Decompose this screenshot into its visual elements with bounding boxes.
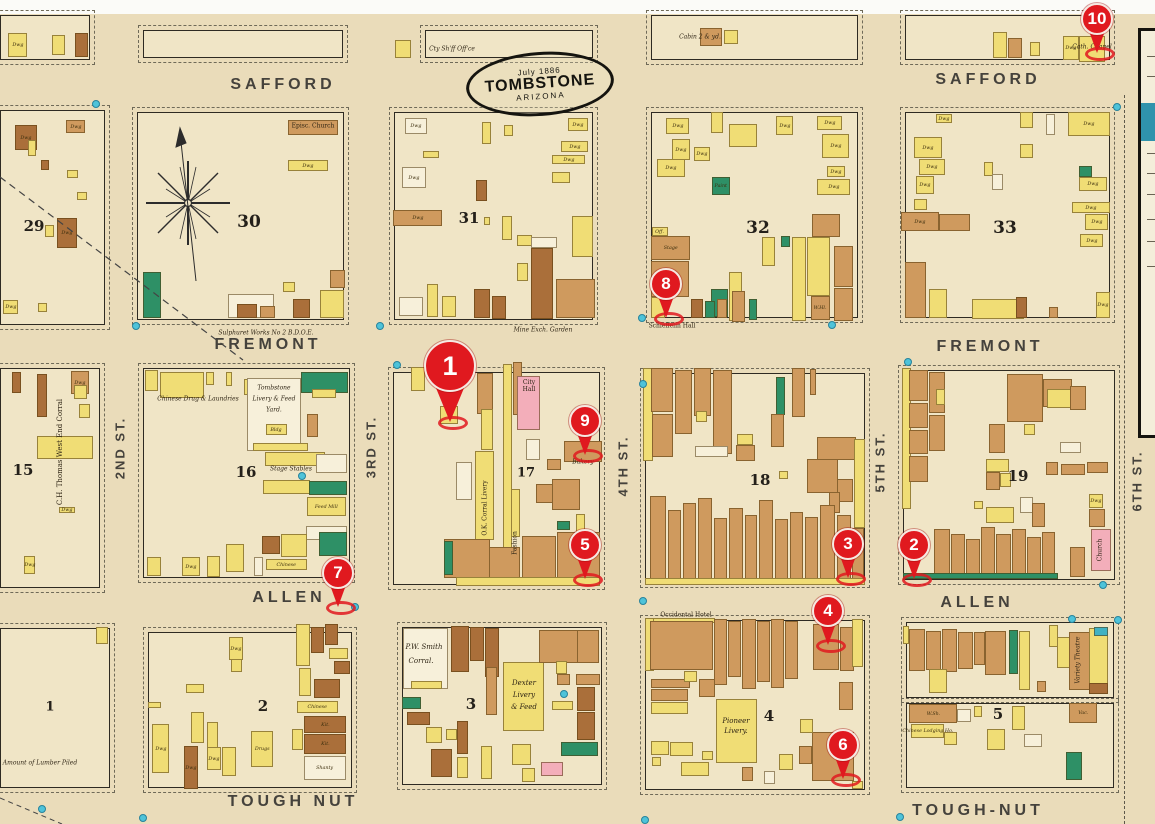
building: Bldg (266, 424, 287, 435)
block-number-17: 17 (517, 466, 535, 481)
building: Dwg (822, 134, 849, 158)
street-label-allen: ALLEN (252, 589, 325, 607)
water-hydrant-dot (38, 805, 46, 813)
building (985, 631, 1006, 675)
building: Dwg (817, 116, 842, 130)
building (531, 248, 553, 319)
water-hydrant-dot (560, 690, 568, 698)
photo-edge (0, 0, 1155, 14)
marker-number: 4 (823, 601, 832, 621)
building (1016, 297, 1027, 318)
water-hydrant-dot (92, 100, 100, 108)
building (668, 510, 681, 580)
marker-number: 7 (333, 563, 342, 583)
building: Dwg (561, 141, 588, 152)
block-number-5: 5 (993, 705, 1003, 723)
building (696, 411, 707, 422)
building (1037, 681, 1046, 692)
building (951, 534, 965, 578)
building: Dwg (672, 139, 690, 160)
building (974, 706, 982, 717)
building: Dwg (919, 159, 945, 175)
building-label: Dwg (828, 185, 839, 190)
map-marker-5[interactable]: 5 (569, 529, 601, 585)
building-label: Dwg (61, 231, 72, 236)
building (311, 627, 324, 653)
building (561, 742, 598, 756)
adjacent-sheet-legend-strip (1138, 28, 1155, 438)
building (834, 246, 853, 287)
building (330, 270, 345, 288)
street-label-3rd-st-: 3RD ST. (364, 416, 379, 478)
building (936, 389, 945, 405)
building (1008, 38, 1022, 58)
water-hydrant-dot (638, 314, 646, 322)
building (541, 762, 563, 776)
building (226, 544, 244, 572)
building: Kit. (304, 734, 346, 754)
building (511, 489, 520, 537)
building-label: Dwg (696, 152, 707, 157)
building (470, 627, 484, 661)
building-label: Dwg (914, 219, 925, 224)
marker-number: 6 (838, 735, 847, 755)
building (475, 451, 494, 540)
building (790, 512, 803, 580)
building (652, 414, 673, 457)
building: Dwg (552, 155, 585, 164)
building (1089, 628, 1108, 686)
building (909, 403, 928, 428)
building (695, 446, 728, 457)
building (1046, 114, 1055, 135)
building: Paint (712, 177, 730, 195)
building (996, 534, 1011, 578)
building (482, 122, 491, 144)
water-hydrant-dot (1099, 581, 1107, 589)
building (293, 299, 310, 318)
building (309, 481, 347, 495)
building (1070, 386, 1086, 410)
marker-pin-tail (436, 388, 464, 422)
marker-circle: 4 (812, 595, 844, 627)
building-label: Dwg (24, 563, 35, 568)
building (807, 237, 830, 296)
building (1019, 631, 1030, 690)
building (986, 472, 1000, 490)
building (552, 701, 573, 710)
building (929, 415, 945, 451)
building (314, 679, 340, 698)
building (307, 414, 318, 437)
water-hydrant-dot (139, 814, 147, 822)
building (325, 624, 338, 645)
building: Dwg (817, 179, 850, 195)
building (729, 124, 757, 147)
building-label: Dwg (830, 169, 841, 174)
building-label: Paint (715, 184, 727, 189)
building (427, 284, 438, 317)
building (650, 496, 666, 580)
building (79, 404, 90, 418)
building (817, 437, 856, 460)
building (442, 296, 456, 317)
building (512, 744, 531, 765)
block-number-15: 15 (13, 461, 34, 479)
building-label: Stage (664, 246, 678, 251)
building-label: Dwg (412, 216, 423, 221)
building (451, 626, 469, 672)
water-hydrant-dot (132, 322, 140, 330)
building (1030, 42, 1040, 56)
building: W.Sh. (909, 704, 957, 723)
map-block (651, 15, 858, 60)
building (191, 712, 204, 743)
building (1020, 112, 1033, 128)
building (517, 376, 540, 430)
building-label: Dwg (302, 163, 313, 168)
building (431, 749, 452, 777)
building (37, 374, 47, 417)
marker-number: 5 (580, 535, 589, 555)
building (517, 235, 532, 246)
building (779, 754, 793, 770)
building (1009, 630, 1018, 674)
block-number-18: 18 (750, 471, 771, 489)
building (476, 180, 487, 201)
map-marker-2[interactable]: 2 (898, 529, 930, 585)
building (807, 459, 838, 493)
marker-circle: 8 (650, 268, 682, 300)
building-label: Dwg (919, 183, 930, 188)
building: Dwg (288, 160, 328, 171)
map-marker-9[interactable]: 9 (569, 405, 601, 461)
building-label: Vac. (1078, 711, 1088, 716)
building (779, 471, 788, 479)
building-label: Off. (656, 229, 665, 234)
water-hydrant-dot (828, 321, 836, 329)
building (1060, 442, 1081, 453)
building (517, 263, 528, 281)
building: Dwg (1085, 214, 1108, 230)
building (147, 557, 161, 576)
building (1024, 734, 1042, 747)
street-label-2nd-st-: 2ND ST. (113, 417, 128, 479)
building (1070, 547, 1085, 577)
building (283, 282, 295, 292)
building (334, 661, 350, 674)
building-label: Chinese (277, 562, 297, 567)
building (186, 684, 204, 693)
building-label: Dwg (926, 165, 937, 170)
building (160, 372, 204, 398)
building-label: Dwg (208, 756, 219, 761)
building-label: Feed Mill (315, 504, 338, 509)
building (207, 556, 220, 577)
building (423, 151, 439, 158)
building (522, 768, 535, 782)
building: Shanty (304, 756, 346, 780)
building (1046, 462, 1058, 475)
building: Dwg (402, 167, 426, 188)
building: Dwg (57, 218, 77, 248)
building-label: Dwg (1091, 220, 1102, 225)
building (557, 674, 570, 685)
building (805, 517, 818, 580)
building (700, 28, 722, 46)
building (992, 174, 1003, 190)
water-hydrant-dot (298, 472, 306, 480)
building (986, 459, 1009, 472)
building (909, 370, 928, 401)
building (728, 621, 741, 677)
building (37, 436, 93, 459)
building (457, 721, 468, 754)
building: Vac. (1069, 703, 1097, 723)
building (757, 621, 770, 682)
building (1079, 166, 1092, 177)
map-marker-7[interactable]: 7 (322, 557, 354, 613)
building-label: Dwg (1086, 238, 1097, 243)
marker-circle: 3 (832, 528, 864, 560)
building (792, 237, 806, 321)
building (329, 648, 348, 659)
building (737, 434, 753, 445)
building (1047, 389, 1071, 408)
building (713, 370, 732, 454)
building (749, 299, 757, 320)
building-label: Shanty (317, 766, 334, 771)
building (698, 498, 712, 580)
water-hydrant-dot (376, 322, 384, 330)
building (456, 462, 472, 500)
map-marker-3[interactable]: 3 (832, 528, 864, 584)
building (75, 33, 88, 57)
building (745, 515, 757, 580)
building (652, 757, 661, 766)
building (260, 306, 275, 318)
building (974, 501, 983, 509)
building (262, 536, 280, 554)
street-label-tough-nut: TOUGH-NUT (912, 802, 1044, 820)
building (729, 508, 743, 580)
street-label-safford: SAFFORD (935, 71, 1040, 89)
building: Dwg (1072, 202, 1110, 213)
building (909, 629, 925, 671)
building-label: Kit. (321, 742, 330, 747)
building-label: Dwg (155, 746, 166, 751)
building: Dwg (152, 724, 169, 773)
building (207, 722, 218, 748)
building (934, 529, 950, 578)
building (547, 459, 561, 470)
building (1012, 706, 1025, 730)
building-label: Dwg (1083, 122, 1094, 127)
building (762, 237, 775, 266)
building (771, 414, 784, 447)
building (785, 621, 798, 679)
building-label: Drugs (255, 747, 270, 752)
block-number-30: 30 (237, 212, 261, 232)
building (253, 443, 308, 451)
building (771, 619, 784, 688)
building (237, 304, 257, 318)
building (503, 662, 544, 731)
building-label: Dwg (665, 166, 676, 171)
building (12, 372, 21, 393)
marker-number: 8 (661, 274, 670, 294)
building (1094, 627, 1108, 636)
building-label: Dwg (572, 122, 583, 127)
building (670, 742, 693, 756)
building (1089, 509, 1105, 527)
building (1032, 503, 1045, 527)
building (77, 192, 87, 200)
building (958, 632, 973, 669)
building (426, 727, 442, 743)
building (684, 671, 697, 682)
building (489, 547, 520, 578)
street-label-6th-st-: 6TH ST. (1130, 451, 1145, 512)
street-label-4th-st-: 4TH ST. (616, 436, 631, 497)
water-hydrant-dot (1114, 616, 1122, 624)
building (531, 237, 557, 248)
building (576, 674, 600, 685)
block-number-3: 3 (466, 695, 476, 713)
marker-number: 2 (909, 535, 918, 555)
building (222, 747, 236, 776)
building (1042, 532, 1055, 578)
building (776, 377, 785, 415)
building: Dwg (229, 637, 243, 660)
building: Chinese (297, 701, 338, 713)
map-marker-8[interactable]: 8 (650, 268, 682, 324)
street-label-tough-nut: TOUGH NUT (228, 793, 359, 811)
building (299, 668, 311, 696)
building (486, 667, 497, 715)
map-block (0, 628, 110, 788)
map-marker-10[interactable]: 10 (1081, 3, 1113, 59)
building (650, 621, 713, 670)
building: Dwg (184, 746, 198, 789)
building-label: Mine Exch. Garden (514, 328, 573, 335)
building-label: Dwg (5, 305, 16, 310)
marker-number: 1 (442, 351, 457, 382)
building: Dwg (393, 210, 442, 226)
building-label: Dwg (70, 124, 81, 129)
marker-circle: 5 (569, 529, 601, 561)
building (724, 30, 738, 44)
building: Dwg (405, 118, 427, 134)
building (444, 541, 453, 575)
map-marker-6[interactable]: 6 (827, 729, 859, 785)
building: Chinese (266, 559, 307, 570)
building (929, 289, 947, 318)
building (522, 536, 556, 578)
water-hydrant-dot (639, 597, 647, 605)
building: Dwg (776, 116, 793, 135)
building-label: Dwg (185, 765, 196, 770)
building (67, 170, 78, 178)
building (395, 40, 411, 58)
map-marker-1[interactable]: 1 (424, 340, 476, 428)
building (402, 697, 421, 709)
building: Dwg (901, 212, 939, 231)
building (714, 619, 727, 685)
building: Dwg (936, 114, 952, 123)
building (484, 217, 490, 225)
building (914, 199, 927, 210)
building (854, 439, 865, 528)
building (481, 409, 493, 450)
building (502, 216, 512, 240)
water-hydrant-dot (904, 358, 912, 366)
building (52, 35, 65, 55)
building (281, 534, 307, 557)
building (989, 424, 1005, 453)
building-label: Dwg (1085, 205, 1096, 210)
building-label: Dwg (824, 121, 835, 126)
building (403, 628, 448, 689)
building-label: Dwg (779, 123, 790, 128)
building (1066, 752, 1082, 780)
building: Dwg (694, 147, 710, 161)
building: Chinese Lodging Ho. (911, 724, 944, 738)
building (552, 172, 570, 183)
building (1024, 424, 1035, 435)
building: Stage (651, 236, 690, 260)
building: Dwg (916, 176, 934, 194)
building: Dwg (1079, 177, 1107, 191)
building (143, 272, 161, 318)
building (320, 290, 344, 318)
building (742, 619, 756, 689)
building (981, 527, 995, 578)
building: Dwg (1063, 36, 1079, 60)
building (1020, 144, 1033, 158)
building (1061, 464, 1085, 475)
building (231, 659, 242, 672)
building: Dwg (24, 556, 35, 574)
block-number-33: 33 (993, 218, 1017, 238)
building (957, 709, 971, 722)
building (781, 236, 790, 247)
building (799, 746, 812, 764)
building (145, 370, 158, 391)
marker-circle: 9 (569, 405, 601, 437)
building (909, 430, 928, 454)
building: Dwg (1068, 112, 1110, 136)
water-hydrant-dot (393, 361, 401, 369)
building-label: Dwg (569, 144, 580, 149)
street-label-fremont: FREMONT (936, 338, 1043, 356)
block-number-4: 4 (764, 707, 774, 725)
building-label: Dwg (408, 175, 419, 180)
building (711, 112, 723, 133)
building (974, 632, 985, 665)
building (651, 689, 688, 701)
building (572, 216, 593, 257)
building: Dwg (568, 118, 588, 131)
building (446, 729, 457, 740)
building (319, 532, 347, 556)
map-marker-4[interactable]: 4 (812, 595, 844, 651)
building (577, 687, 595, 711)
building: Dwg (59, 507, 75, 513)
building-label: W.Hl. (814, 306, 827, 311)
building: Dwg (827, 166, 845, 177)
building (577, 630, 599, 663)
